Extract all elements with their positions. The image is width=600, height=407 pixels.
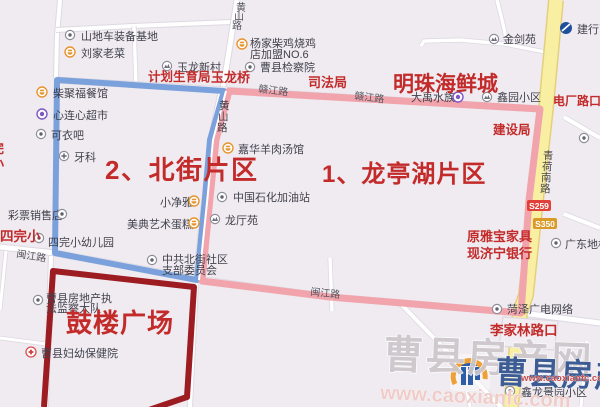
svg-text:金剑苑: 金剑苑 (503, 32, 536, 46)
svg-text:刘家老菜: 刘家老菜 (81, 46, 125, 60)
svg-text:曹县妇幼保健院: 曹县妇幼保健院 (41, 346, 118, 360)
svg-text:1、龙亭湖片区: 1、龙亭湖片区 (322, 160, 486, 188)
svg-text:路: 路 (217, 121, 228, 134)
svg-text:杨家柴鸡烧鸡: 杨家柴鸡烧鸡 (250, 36, 316, 50)
svg-text:中国石化加油站: 中国石化加油站 (233, 190, 310, 204)
svg-text:司法局: 司法局 (308, 75, 347, 90)
svg-text:小: 小 (0, 156, 4, 171)
svg-text:www.caoxianfc.com: www.caoxianfc.com (520, 373, 600, 384)
svg-text:李家林路口: 李家林路口 (489, 322, 558, 338)
svg-text:玉龙桥: 玉龙桥 (211, 70, 251, 85)
svg-text:四完小幼儿园: 四完小幼儿园 (48, 235, 114, 249)
svg-text:路: 路 (540, 182, 551, 195)
svg-text:原雅宝家具: 原雅宝家具 (467, 229, 532, 244)
svg-text:店加盟NO.6: 店加盟NO.6 (250, 47, 309, 61)
svg-text:心连心超市: 心连心超市 (53, 108, 108, 122)
svg-text:明珠海鲜城: 明珠海鲜城 (393, 72, 498, 96)
svg-text:鼓楼广场: 鼓楼广场 (66, 308, 174, 338)
svg-text:美典艺术蛋糕: 美典艺术蛋糕 (127, 217, 193, 231)
svg-text:2、北街片区: 2、北街片区 (105, 155, 258, 185)
svg-text:中共北街社区: 中共北街社区 (162, 252, 228, 266)
svg-text:可衣吧: 可衣吧 (51, 128, 84, 142)
svg-text:龙厅苑: 龙厅苑 (225, 214, 258, 227)
svg-text:小净雅: 小净雅 (160, 195, 193, 209)
svg-text:现济宁银行: 现济宁银行 (467, 246, 532, 261)
svg-text:支部委员会: 支部委员会 (162, 263, 217, 277)
svg-text:柴聚福餐馆: 柴聚福餐馆 (53, 86, 108, 100)
svg-text:完: 完 (0, 141, 4, 156)
svg-text:建行曹: 建行曹 (577, 22, 600, 36)
svg-text:菏泽广电网络: 菏泽广电网络 (507, 302, 573, 316)
svg-text:四完小: 四完小 (0, 228, 41, 244)
svg-text:山地车装备基地: 山地车装备基地 (81, 29, 158, 43)
svg-text:曹县检察院: 曹县检察院 (260, 60, 315, 74)
svg-text:S350: S350 (535, 219, 555, 229)
svg-text:路: 路 (232, 19, 242, 32)
svg-text:嘉华羊肉汤馆: 嘉华羊肉汤馆 (238, 142, 304, 156)
svg-text:鑫园小区: 鑫园小区 (497, 90, 541, 104)
svg-text:彩票销售店: 彩票销售店 (8, 208, 63, 222)
svg-text:计划生育局: 计划生育局 (148, 69, 211, 84)
svg-text:S259: S259 (529, 201, 549, 211)
svg-text:电厂路口: 电厂路口 (553, 93, 600, 108)
svg-text:广东地板城: 广东地板城 (565, 237, 600, 251)
svg-text:建设局: 建设局 (493, 122, 531, 137)
svg-text:牙科: 牙科 (74, 150, 96, 164)
